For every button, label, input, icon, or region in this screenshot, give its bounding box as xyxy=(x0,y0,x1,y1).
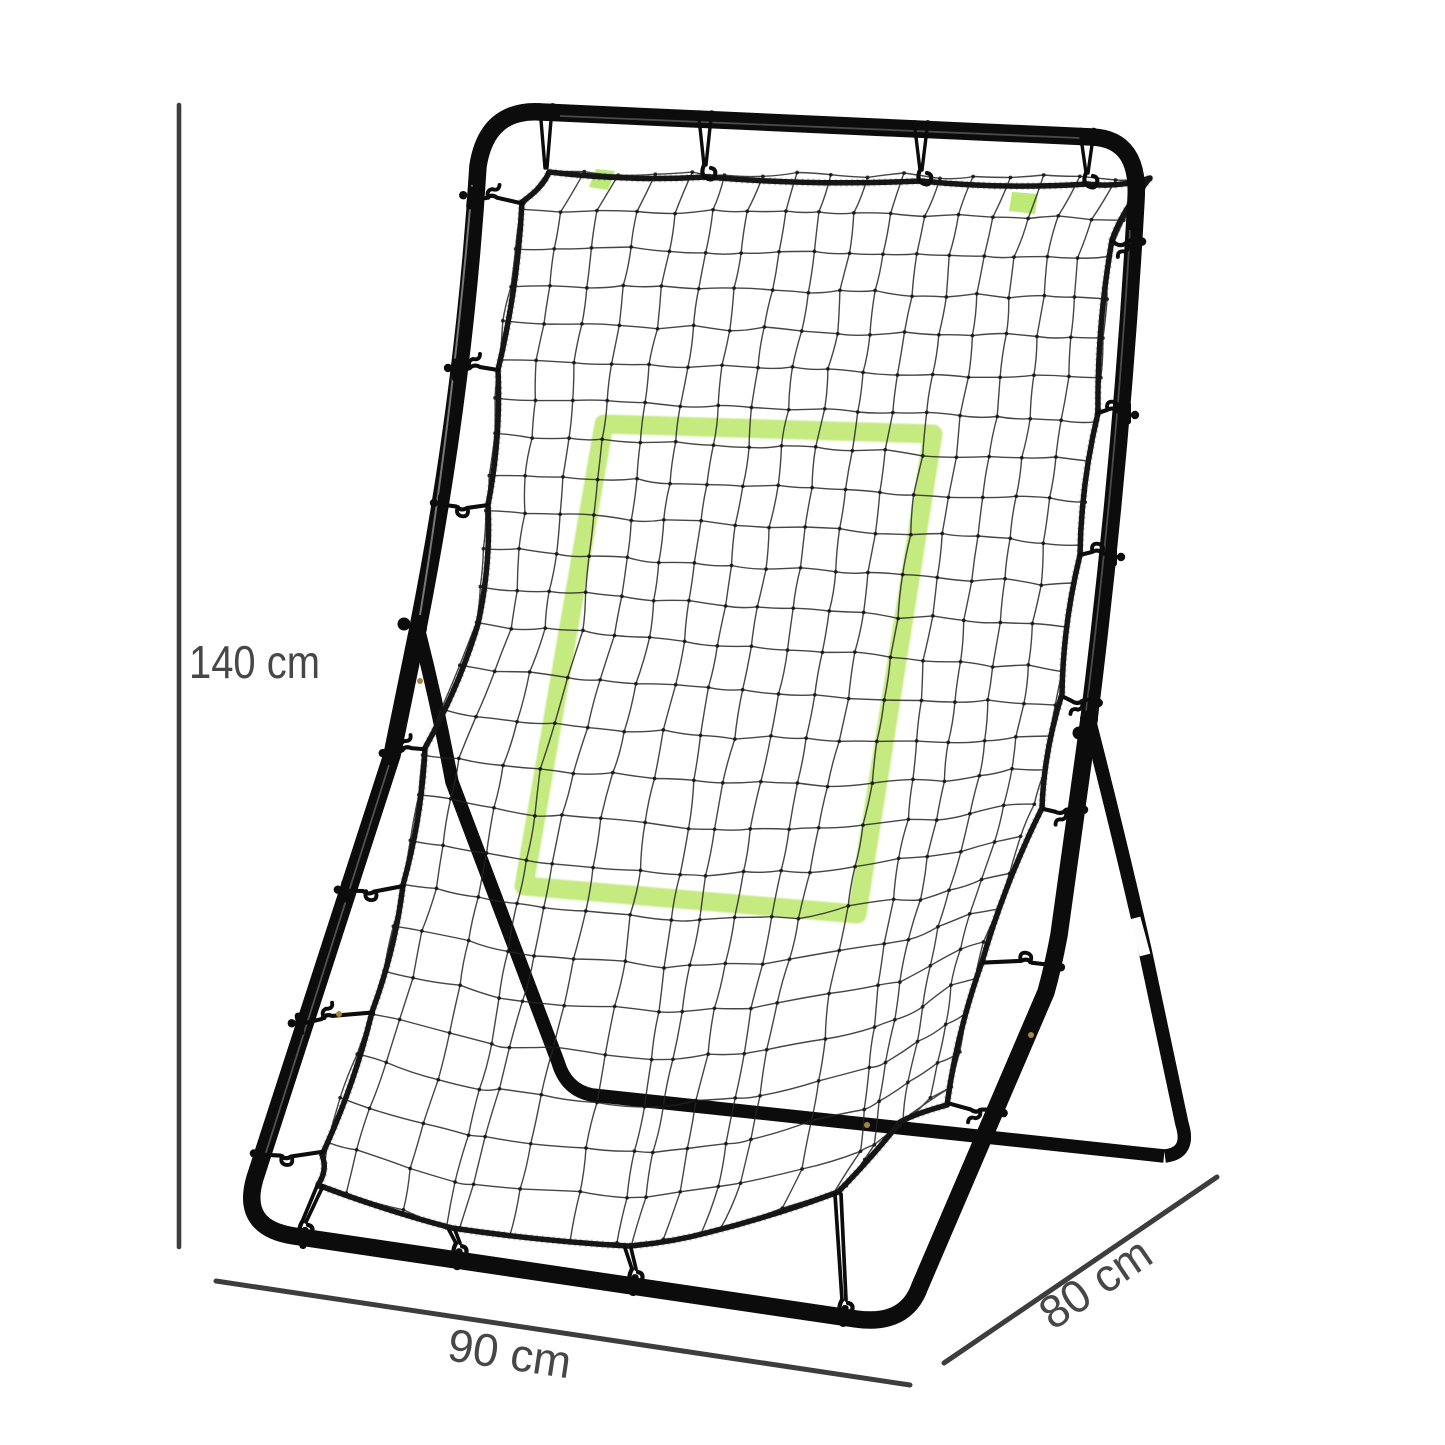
svg-text:140 cm: 140 cm xyxy=(189,636,320,688)
